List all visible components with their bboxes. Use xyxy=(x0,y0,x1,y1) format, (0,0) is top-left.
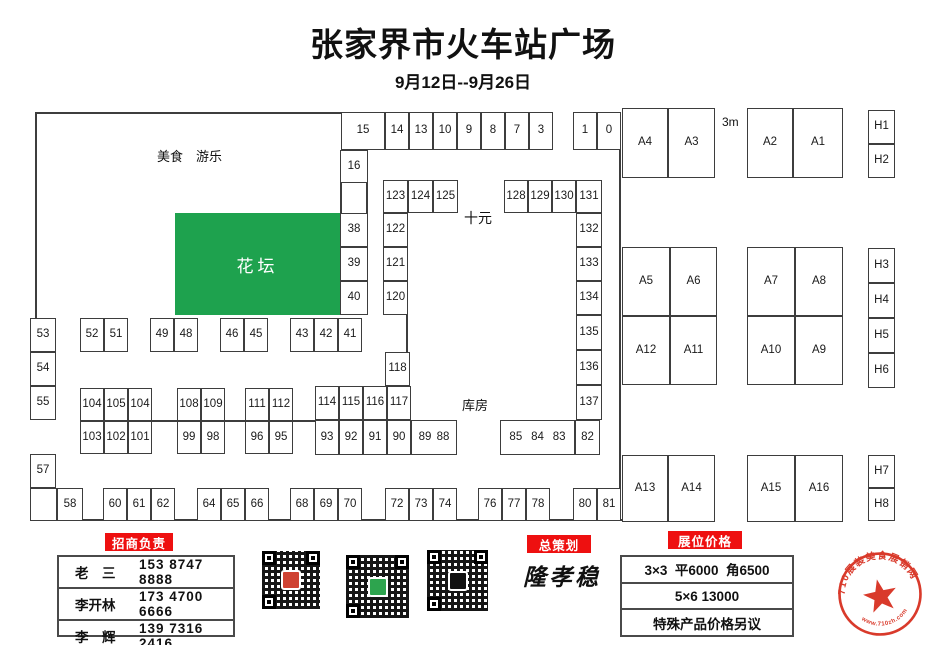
booth-109: 109 xyxy=(201,388,225,421)
booth-H5: H5 xyxy=(868,318,895,353)
price-row: 3×3 平6000 角6500 xyxy=(622,557,792,584)
qr-finder-square xyxy=(346,604,360,618)
booth-112: 112 xyxy=(269,388,293,421)
booth-64: 64 xyxy=(197,488,221,521)
recruit-badge: 招商负责 xyxy=(105,533,173,551)
booth-43: 43 xyxy=(290,318,314,352)
booth-90: 90 xyxy=(387,420,411,455)
booth-95: 95 xyxy=(269,421,293,454)
booth-116: 116 xyxy=(363,386,387,420)
booth-A11: A11 xyxy=(670,316,717,385)
booth-46: 46 xyxy=(220,318,244,352)
ten-yuan-label: 十元 xyxy=(464,211,492,225)
booth-39: 39 xyxy=(340,247,368,281)
booth-H6: H6 xyxy=(868,353,895,388)
price-row: 5×6 13000 xyxy=(622,584,792,611)
flowerbed-area: 花坛 xyxy=(175,213,340,315)
qr-finder-square xyxy=(427,597,441,611)
booth-103: 103 xyxy=(80,421,104,454)
booth-7: 7 xyxy=(505,112,529,150)
corridor-line xyxy=(406,315,408,352)
booth-14: 14 xyxy=(385,112,409,150)
booth-H4: H4 xyxy=(868,283,895,318)
warehouse-label: 库房 xyxy=(462,399,488,412)
qr-finder-square xyxy=(346,555,360,569)
booth-A13: A13 xyxy=(622,455,668,522)
booth-115: 115 xyxy=(339,386,363,420)
booth-A8: A8 xyxy=(795,247,843,316)
booth-78: 78 xyxy=(526,488,550,521)
booth-A7: A7 xyxy=(747,247,795,316)
booth-55: 55 xyxy=(30,386,56,420)
booth-0: 0 xyxy=(597,112,621,150)
contact-row: 老 三 153 8747 8888 xyxy=(59,557,233,589)
booth-label: 84 xyxy=(531,432,544,444)
booth-102: 102 xyxy=(104,421,128,454)
booth-101: 101 xyxy=(128,421,152,454)
booth-76: 76 xyxy=(478,488,502,521)
booth-130: 130 xyxy=(552,180,576,213)
boundary-line-top xyxy=(35,112,342,114)
booth-120: 120 xyxy=(383,281,408,315)
price-badge: 展位价格 xyxy=(668,531,742,549)
booth-104-2: 104 xyxy=(128,388,152,421)
flowerbed-label: 花坛 xyxy=(237,252,279,277)
booth-134: 134 xyxy=(576,281,602,315)
booth-135: 135 xyxy=(576,315,602,350)
booth-38: 38 xyxy=(340,213,368,247)
booth-129: 129 xyxy=(528,180,552,213)
booth-H1: H1 xyxy=(868,110,895,144)
booth-98: 98 xyxy=(201,421,225,454)
booth-1: 1 xyxy=(573,112,597,150)
booth-65: 65 xyxy=(221,488,245,521)
qr-finder-square xyxy=(474,550,488,564)
booth-137: 137 xyxy=(576,385,602,420)
poster: 张家界市火车站广场 9月12日--9月26日 花坛 15141310987310… xyxy=(0,0,926,645)
booth-57: 57 xyxy=(30,454,56,488)
company-stamp: 710展装美食展销网 www.710zh.com xyxy=(827,540,926,645)
booth-8: 8 xyxy=(481,112,505,150)
boundary-line-left xyxy=(35,112,37,318)
booth-58: 58 xyxy=(57,488,83,521)
price-table: 3×3 平6000 角6500 5×6 13000 特殊产品价格另议 xyxy=(620,555,794,637)
contact-phone: 153 8747 8888 xyxy=(139,557,233,587)
planner-name: 隆孝稳 xyxy=(523,558,601,592)
booth-133: 133 xyxy=(576,247,602,281)
booth-69: 69 xyxy=(314,488,338,521)
booth-105: 105 xyxy=(104,388,128,421)
booth-45: 45 xyxy=(244,318,268,352)
contact-row: 李 辉 139 7316 2416 xyxy=(59,621,233,645)
booth-74: 74 xyxy=(433,488,457,521)
food-amusement-label: 美食 游乐 xyxy=(157,150,222,163)
qr-center-logo xyxy=(368,577,388,597)
contact-row: 李开林 173 4700 6666 xyxy=(59,589,233,621)
contact-name: 老 三 xyxy=(59,562,139,582)
booth-108: 108 xyxy=(177,388,201,421)
booth-104: 104 xyxy=(80,388,104,421)
booth-131: 131 xyxy=(576,180,602,213)
contact-table: 老 三 153 8747 8888 李开林 173 4700 6666 李 辉 … xyxy=(57,555,235,637)
booth-136: 136 xyxy=(576,350,602,385)
booth-68: 68 xyxy=(290,488,314,521)
booth-82: 82 xyxy=(575,420,600,455)
booth-85-84-83: 858483 xyxy=(500,420,575,455)
booth-13: 13 xyxy=(409,112,433,150)
stamp-star-icon xyxy=(861,576,900,614)
booth-122: 122 xyxy=(383,213,408,247)
booth-A12: A12 xyxy=(622,316,670,385)
booth-40: 40 xyxy=(340,281,368,315)
booth-A10: A10 xyxy=(747,316,795,385)
booth-89-88: 8988 xyxy=(411,420,457,455)
booth-42: 42 xyxy=(314,318,338,352)
booth-66: 66 xyxy=(245,488,269,521)
booth-70: 70 xyxy=(338,488,362,521)
booth-62: 62 xyxy=(151,488,175,521)
contact-name: 李 辉 xyxy=(59,626,139,645)
strip-line-right xyxy=(366,183,368,213)
booth-3: 3 xyxy=(529,112,553,150)
booth-114: 114 xyxy=(315,386,339,420)
booth-96: 96 xyxy=(245,421,269,454)
booth-15: 15 xyxy=(341,112,385,150)
contact-phone: 173 4700 6666 xyxy=(139,589,233,619)
booth-41: 41 xyxy=(338,318,362,352)
booth-125: 125 xyxy=(433,180,458,213)
booth-117: 117 xyxy=(387,386,411,420)
booth-A6: A6 xyxy=(670,247,717,316)
contact-phone: 139 7316 2416 xyxy=(139,621,233,645)
booth-A14: A14 xyxy=(668,455,715,522)
booth-label: 85 xyxy=(509,432,522,444)
booth-118: 118 xyxy=(385,352,410,386)
booth-121: 121 xyxy=(383,247,408,281)
booth-A16: A16 xyxy=(795,455,843,522)
qr-finder-square xyxy=(262,595,276,609)
scale-3m-label: 3m xyxy=(722,116,739,128)
booth-92: 92 xyxy=(339,420,363,455)
booth-H2: H2 xyxy=(868,144,895,178)
booth-53: 53 xyxy=(30,318,56,352)
booth-label: 83 xyxy=(553,432,566,444)
booth-52: 52 xyxy=(80,318,104,352)
booth-label: 88 xyxy=(437,432,450,444)
booth-48: 48 xyxy=(174,318,198,352)
booth-72: 72 xyxy=(385,488,409,521)
qr-finder-square xyxy=(306,551,320,565)
booth-60: 60 xyxy=(103,488,127,521)
booth-9: 9 xyxy=(457,112,481,150)
booth-A2: A2 xyxy=(747,108,793,178)
booth-99: 99 xyxy=(177,421,201,454)
strip-line-left xyxy=(340,183,342,213)
qr-center-logo xyxy=(448,571,468,591)
booth-123: 123 xyxy=(383,180,408,213)
qr-finder-square xyxy=(427,550,441,564)
booth-73: 73 xyxy=(409,488,433,521)
booth-A15: A15 xyxy=(747,455,795,522)
price-row: 特殊产品价格另议 xyxy=(622,610,792,635)
planner-badge: 总策划 xyxy=(527,535,591,553)
qr-center-logo xyxy=(281,570,301,590)
booth-H7: H7 xyxy=(868,455,895,488)
booth-A1: A1 xyxy=(793,108,843,178)
booth-54: 54 xyxy=(30,352,56,386)
booth-A4: A4 xyxy=(622,108,668,178)
contact-name: 李开林 xyxy=(59,594,139,614)
booth-111: 111 xyxy=(245,388,269,421)
booth-124: 124 xyxy=(408,180,433,213)
booth-A9: A9 xyxy=(795,316,843,385)
booth-80: 80 xyxy=(573,488,597,521)
qr-code-wechat xyxy=(427,550,488,611)
qr-finder-square xyxy=(395,555,409,569)
booth-49: 49 xyxy=(150,318,174,352)
booth-A3: A3 xyxy=(668,108,715,178)
qr-finder-square xyxy=(262,551,276,565)
booth-93: 93 xyxy=(315,420,339,455)
booth-A5: A5 xyxy=(622,247,670,316)
booth-16: 16 xyxy=(340,150,368,183)
booth-91: 91 xyxy=(363,420,387,455)
booth-132: 132 xyxy=(576,213,602,247)
qr-code-middle xyxy=(346,555,409,618)
boundary-line-right xyxy=(619,112,621,521)
booth-81: 81 xyxy=(597,488,621,521)
booth-label: 89 xyxy=(419,432,432,444)
empty-cell xyxy=(30,488,57,521)
booth-61: 61 xyxy=(127,488,151,521)
booth-10: 10 xyxy=(433,112,457,150)
booth-H8: H8 xyxy=(868,488,895,521)
booth-51: 51 xyxy=(104,318,128,352)
booth-77: 77 xyxy=(502,488,526,521)
qr-code-left xyxy=(262,551,320,609)
booth-H3: H3 xyxy=(868,248,895,283)
booth-128: 128 xyxy=(504,180,528,213)
